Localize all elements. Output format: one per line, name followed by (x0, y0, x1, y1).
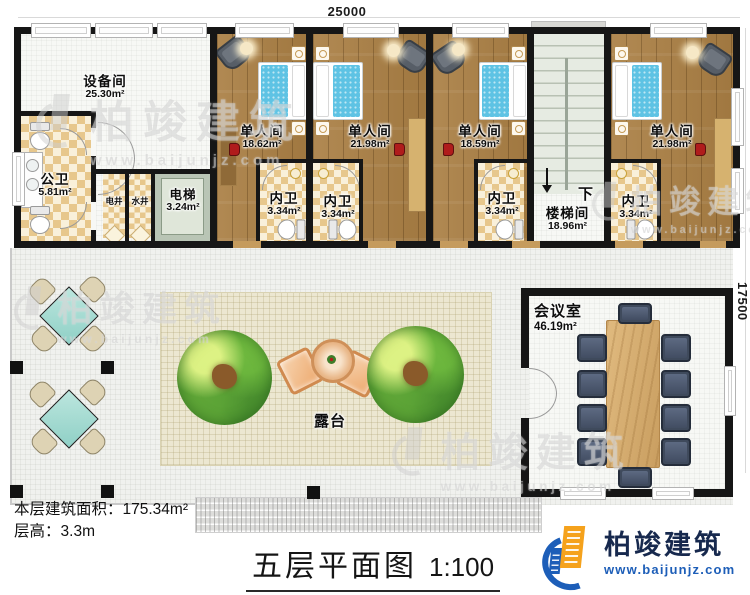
meeting-wall-top (521, 288, 733, 296)
bath-fixture (290, 168, 301, 179)
pillow (292, 65, 305, 117)
toilet-tank (515, 220, 524, 240)
window (652, 487, 694, 500)
conference-chair (661, 370, 691, 398)
meeting-wall-left (521, 418, 529, 497)
floor-stats: 本层建筑面积：175.34m² 层高：3.3m (14, 499, 188, 544)
conference-chair (661, 334, 691, 362)
toilet-icon (329, 220, 356, 240)
window (560, 487, 606, 500)
terrace-label: 露台 (295, 414, 365, 431)
stairwell-label: 楼梯间 18.96m² (526, 206, 609, 233)
company-logo-text: 柏竣建筑 www.baijunjz.com (604, 531, 735, 576)
conference-chair (577, 438, 607, 466)
wall-int (210, 27, 217, 248)
wall-bath (256, 159, 306, 163)
nightstand (614, 46, 629, 61)
bedroom3-label: 单人间 18.59m² (440, 124, 520, 151)
window (235, 23, 294, 38)
bed (313, 62, 363, 120)
toilet-bowl (637, 220, 655, 240)
bed (258, 62, 308, 120)
dimension-line-right (745, 28, 746, 473)
bath-fixture (616, 168, 627, 179)
conference-chair (661, 438, 691, 466)
bath2-label: 内卫 3.34m² (312, 194, 364, 221)
nightstand (511, 46, 526, 61)
column (101, 485, 114, 498)
toilet-tank (627, 220, 636, 240)
mattress (333, 65, 360, 117)
drawing-title: 五层平面图1:100 (246, 541, 500, 592)
bed (479, 62, 529, 120)
mattress (482, 65, 509, 117)
drawing-title-text: 五层平面图 (252, 550, 417, 583)
window (724, 366, 736, 416)
dimension-top: 25000 (312, 4, 382, 19)
window (452, 23, 509, 38)
meeting-wall-left (521, 288, 529, 368)
door-threshold (512, 241, 540, 248)
wc-door-gap (91, 202, 96, 230)
floor-area-value: 175.34m² (123, 501, 188, 518)
stair-direction-arrow (546, 168, 548, 190)
company-logo: 柏竣建筑 www.baijunjz.com (544, 524, 735, 584)
bath-fixture (508, 168, 519, 179)
toilet-bowl (496, 220, 514, 240)
bed (612, 62, 662, 120)
conference-chair (577, 404, 607, 432)
column (10, 361, 23, 374)
bath-fixture (318, 168, 329, 179)
nightstand (614, 121, 629, 136)
floor-height-label: 层高： (14, 523, 61, 540)
water-shaft-label: 水井 (129, 197, 151, 207)
toilet-bowl (339, 220, 357, 240)
desk (408, 118, 426, 212)
basin-icon (26, 159, 39, 172)
bath3-label: 内卫 3.34m² (476, 191, 528, 218)
toilet-icon (30, 206, 50, 233)
window (31, 23, 91, 38)
wall-bath (611, 159, 661, 163)
window (731, 88, 744, 146)
ceiling-lamp (452, 43, 465, 56)
stair-direction-label: 下 (571, 187, 601, 204)
paving-strip (195, 497, 542, 533)
door-threshold (440, 241, 468, 248)
floor-height-value: 3.3m (61, 523, 95, 540)
company-url: www.baijunjz.com (604, 562, 735, 577)
table-set (22, 372, 114, 464)
toilet-tank (329, 220, 338, 240)
wall-left (14, 27, 21, 248)
dimension-right: 17500 (735, 282, 750, 321)
table-set (22, 269, 114, 361)
door-threshold (233, 241, 261, 248)
conference-chair (577, 334, 607, 362)
mattress (261, 65, 288, 117)
toilet-icon (497, 220, 524, 240)
floor-area-line: 本层建筑面积：175.34m² (14, 499, 188, 521)
nightstand (315, 121, 330, 136)
floor-plan-canvas: 25000 17500 露台 下 (0, 0, 750, 595)
bath1-label: 内卫 3.34m² (258, 191, 310, 218)
stair-rail (565, 58, 568, 190)
column (307, 486, 320, 499)
terrace-left-railing (10, 248, 12, 505)
door-threshold (368, 241, 396, 248)
elevator-label: 电梯 3.24m² (153, 188, 213, 214)
conference-chair (661, 404, 691, 432)
wall-wc-top (14, 111, 96, 116)
nightstand (291, 46, 306, 61)
floor-height-line: 层高：3.3m (14, 521, 188, 543)
conference-chair (618, 303, 652, 324)
conference-table (606, 320, 660, 468)
bedroom1-label: 单人间 18.62m² (222, 124, 302, 151)
conference-chair (577, 370, 607, 398)
toilet-bowl (30, 132, 50, 150)
wc-door-gap (91, 128, 96, 156)
equipment-room-label: 设备间 25.30m² (65, 74, 145, 101)
toilet-icon (30, 122, 50, 149)
mattress (632, 65, 659, 117)
toilet-tank (30, 122, 50, 131)
window (95, 23, 153, 38)
company-logo-icon (544, 524, 596, 584)
window (731, 168, 744, 214)
meeting-room-label: 会议室 46.19m² (534, 304, 606, 334)
conference-chair (618, 467, 652, 488)
floor-area-label: 本层建筑面积： (14, 501, 123, 518)
pillow (316, 65, 329, 117)
tree (177, 330, 272, 425)
toilet-icon (627, 220, 654, 240)
desk (714, 118, 732, 210)
logo-building-icon (560, 526, 585, 568)
wall-bath (313, 159, 363, 163)
ceiling-lamp (387, 44, 400, 57)
window (157, 23, 207, 38)
ceiling-lamp (240, 42, 253, 55)
door-threshold (615, 241, 643, 248)
toilet-tank (297, 220, 306, 240)
window (650, 23, 707, 38)
pillow (513, 65, 526, 117)
electric-shaft-label: 电井 (103, 197, 125, 207)
toilet-icon (279, 220, 306, 240)
company-name: 柏竣建筑 (604, 531, 735, 559)
pillow (615, 65, 628, 117)
bedroom4-label: 单人间 21.98m² (632, 124, 712, 151)
door-threshold (700, 241, 726, 248)
toilet-bowl (30, 216, 50, 234)
round-table (311, 339, 355, 383)
drawing-scale: 1:100 (429, 552, 494, 582)
wall-bath (474, 159, 527, 163)
meeting-wall-bottom (521, 489, 733, 497)
nightstand (315, 46, 330, 61)
bath4-label: 内卫 3.34m² (610, 194, 662, 221)
window (343, 23, 399, 38)
column (10, 485, 23, 498)
ceiling-lamp (686, 46, 699, 59)
tree (367, 326, 464, 423)
public-wc-label: 公卫 5.81m² (22, 172, 88, 199)
column (101, 361, 114, 374)
bedroom2-label: 单人间 21.98m² (330, 124, 410, 151)
toilet-tank (30, 206, 50, 215)
toilet-bowl (278, 220, 296, 240)
wall-int (426, 27, 433, 248)
